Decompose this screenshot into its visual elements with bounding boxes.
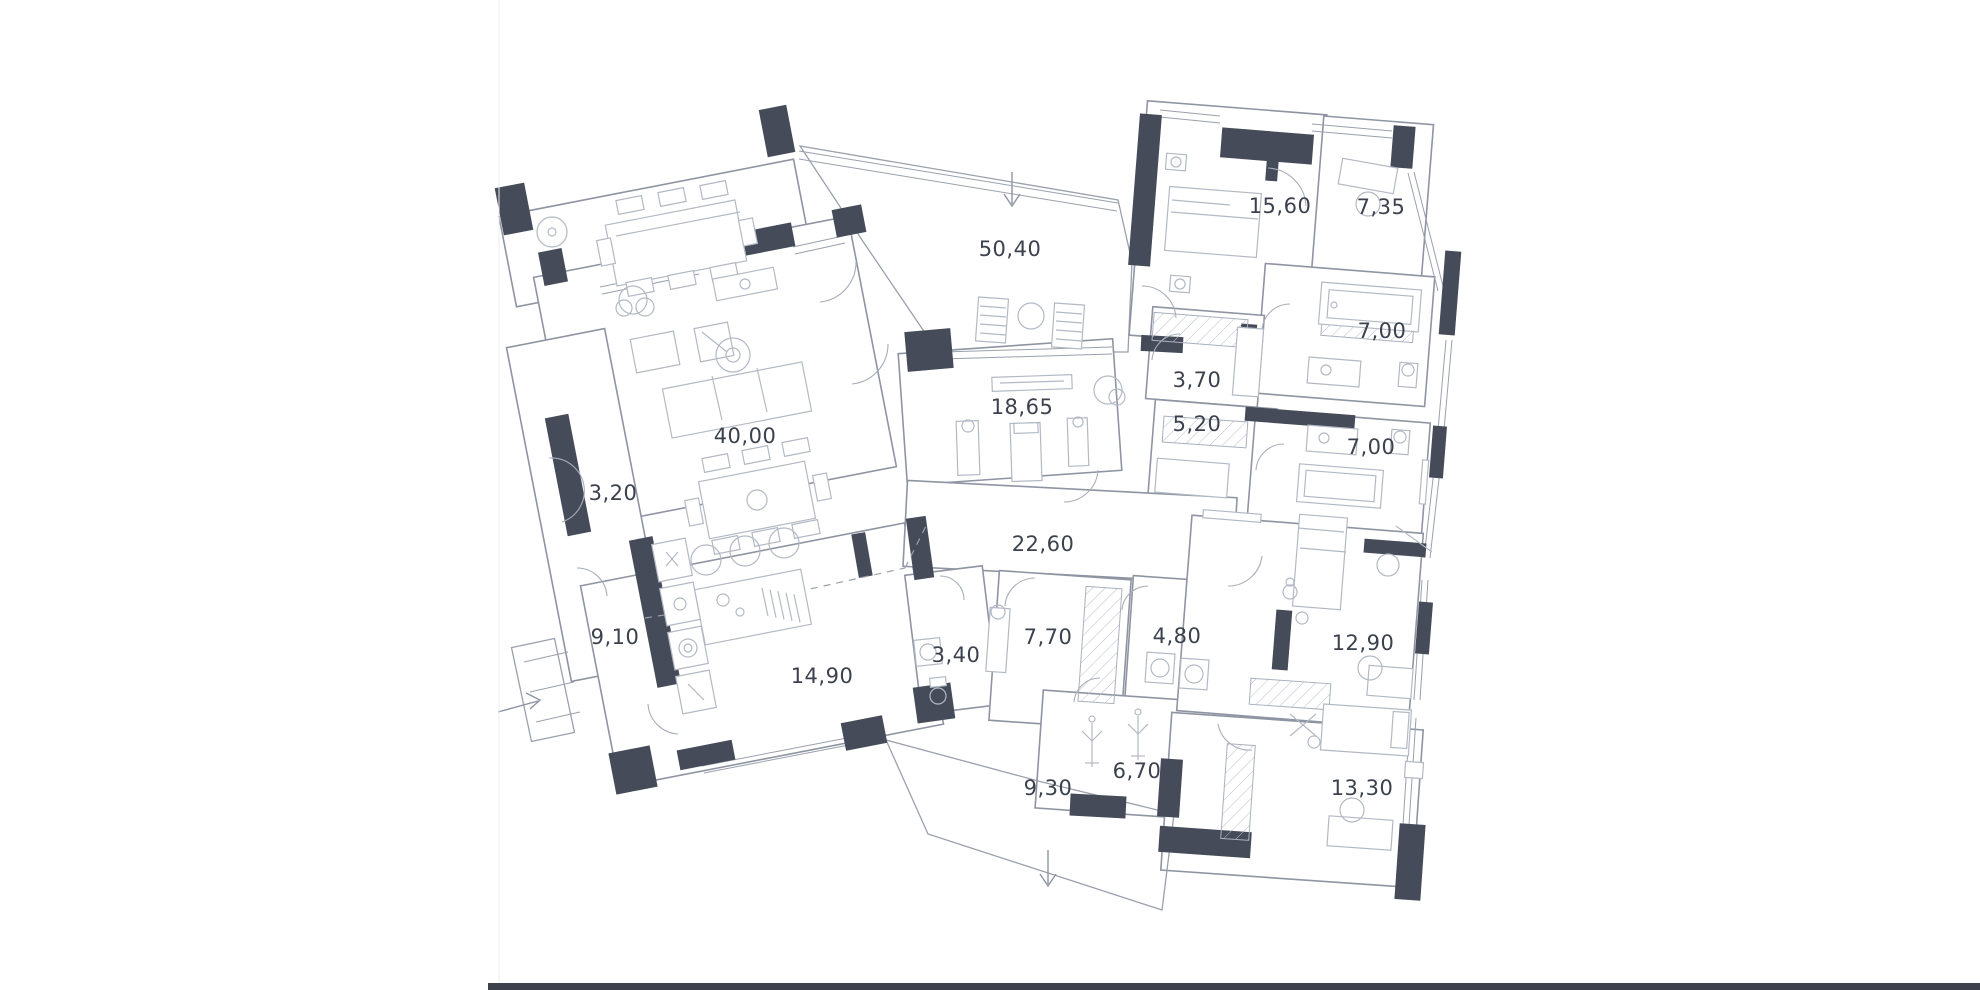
room-label-gym: 18,65	[991, 395, 1054, 419]
floor-plan-svg: 50,40 15,60 7,35 7,00 3,70 5,20 7,00 18,…	[0, 0, 1980, 990]
room-label-kids-bedroom-2: 13,30	[1331, 776, 1394, 800]
room-label-corridor: 22,60	[1012, 532, 1075, 556]
room-label-kids-bedroom-1: 12,90	[1332, 631, 1395, 655]
room-label-wc: 3,40	[932, 643, 981, 667]
room-label-dressing-room: 5,20	[1173, 412, 1222, 436]
room-label-living-room: 40,00	[714, 424, 777, 448]
room-label-laundry: 4,80	[1153, 624, 1202, 648]
floor-plan-page: 50,40 15,60 7,35 7,00 3,70 5,20 7,00 18,…	[0, 0, 1980, 990]
room-label-mudroom: 7,70	[1024, 625, 1073, 649]
room-label-cabinet: 7,35	[1357, 195, 1406, 219]
room-label-master-bedroom: 15,60	[1249, 194, 1312, 218]
room-label-bathroom-2: 7,00	[1347, 435, 1396, 459]
room-label-terrace-upper: 50,40	[979, 237, 1042, 261]
room-label-entry-hall: 3,20	[589, 481, 638, 505]
room-label-kitchen: 14,90	[791, 664, 854, 688]
footer-rule	[488, 983, 1980, 990]
room-label-pantry: 3,70	[1173, 368, 1222, 392]
room-label-bathroom-1: 7,00	[1358, 319, 1407, 343]
room-label-wardrobe-room: 6,70	[1113, 759, 1162, 783]
room-label-hallway: 9,10	[591, 625, 640, 649]
room-label-terrace-lower: 9,30	[1024, 776, 1073, 800]
